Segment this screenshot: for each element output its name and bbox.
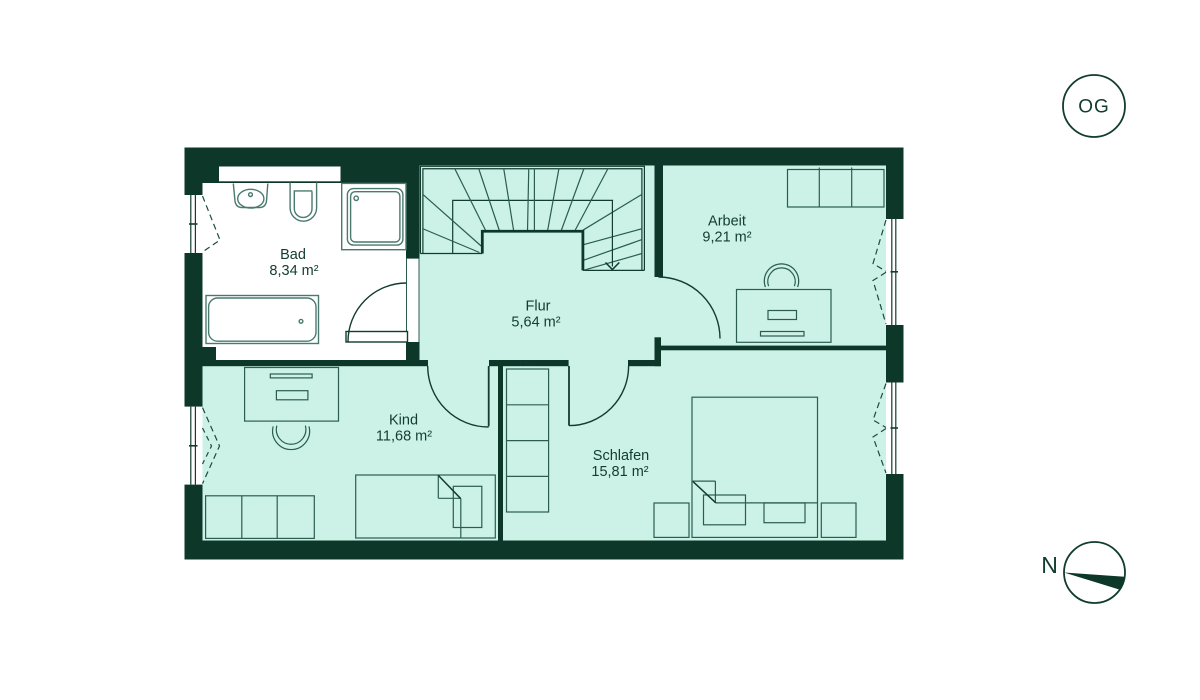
svg-text:Arbeit: Arbeit — [708, 214, 746, 230]
svg-text:HKV: HKV — [519, 359, 536, 368]
svg-text:5,64 m²: 5,64 m² — [511, 315, 560, 331]
svg-text:Flur: Flur — [526, 299, 551, 315]
svg-text:9,21 m²: 9,21 m² — [702, 230, 751, 246]
svg-text:8,34 m²: 8,34 m² — [269, 263, 318, 279]
svg-text:OG: OG — [1078, 97, 1110, 118]
svg-text:Bad: Bad — [280, 247, 306, 263]
svg-text:15,81 m²: 15,81 m² — [591, 464, 648, 480]
svg-text:Kind: Kind — [389, 413, 418, 429]
svg-text:N: N — [1041, 552, 1058, 578]
svg-text:11,68 m²: 11,68 m² — [376, 429, 432, 445]
svg-text:Schlafen: Schlafen — [593, 448, 649, 464]
